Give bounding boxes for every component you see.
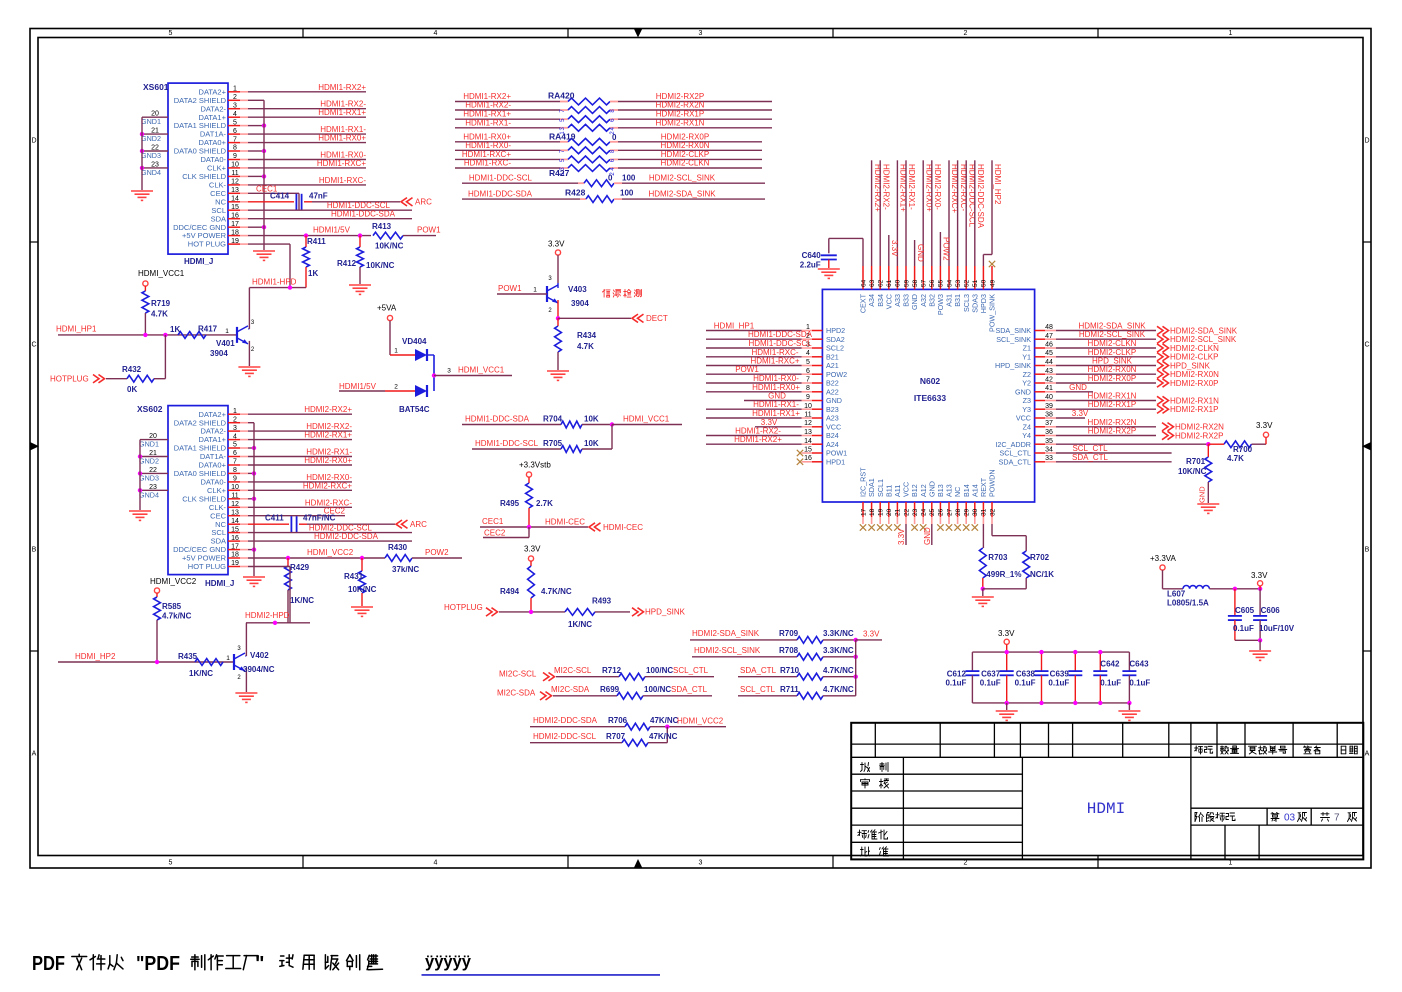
- svg-text:D: D: [1364, 138, 1369, 145]
- svg-text:54: 54: [946, 279, 953, 287]
- svg-text:POW1: POW1: [498, 284, 522, 293]
- svg-text:A22: A22: [826, 387, 839, 396]
- svg-text:VCC: VCC: [1016, 414, 1031, 423]
- svg-text:C637: C637: [981, 670, 1001, 679]
- svg-text:3.3V: 3.3V: [1256, 421, 1273, 430]
- svg-text:37k/NC: 37k/NC: [392, 565, 419, 574]
- svg-text:58: 58: [912, 279, 919, 287]
- svg-text:N602: N602: [920, 376, 941, 386]
- svg-text:MI2C-SCL: MI2C-SCL: [554, 666, 592, 675]
- svg-text:33: 33: [1045, 455, 1053, 462]
- svg-text:10: 10: [231, 484, 239, 491]
- svg-text:41: 41: [1045, 385, 1053, 392]
- svg-text:29: 29: [964, 508, 971, 516]
- svg-text:21: 21: [895, 508, 902, 516]
- svg-text:C612: C612: [947, 670, 967, 679]
- svg-text:62: 62: [878, 279, 885, 287]
- svg-text:RA419: RA419: [549, 132, 576, 142]
- svg-text:Y1: Y1: [1022, 352, 1031, 361]
- svg-text:HDMI_HP1: HDMI_HP1: [56, 325, 97, 334]
- svg-text:15: 15: [804, 447, 812, 454]
- svg-text:HDMI2-RX0-: HDMI2-RX0-: [933, 164, 942, 210]
- svg-text:POW2: POW2: [826, 370, 847, 379]
- svg-text:+3.3Vstb: +3.3Vstb: [519, 461, 551, 470]
- svg-text:22: 22: [903, 508, 910, 516]
- svg-text:63: 63: [869, 279, 876, 287]
- svg-text:HDMI2-RX1N: HDMI2-RX1N: [656, 118, 705, 127]
- svg-text:GND1: GND1: [141, 117, 161, 126]
- svg-text:HDMI1-RX1+: HDMI1-RX1+: [318, 108, 366, 117]
- svg-text:V401: V401: [216, 339, 235, 348]
- svg-text:C643: C643: [1129, 660, 1149, 669]
- svg-text:HDMI1-RXC+: HDMI1-RXC+: [317, 159, 366, 168]
- svg-text:17: 17: [860, 508, 867, 516]
- svg-text:POW_SINK: POW_SINK: [988, 294, 997, 332]
- svg-text:C605: C605: [1235, 606, 1255, 615]
- svg-text:HDMI1-RXC-: HDMI1-RXC-: [751, 348, 798, 357]
- svg-text:HDMI2-RX1N: HDMI2-RX1N: [1088, 392, 1137, 401]
- svg-text:R703: R703: [988, 553, 1008, 562]
- svg-text:47: 47: [1045, 333, 1053, 340]
- svg-text:R494: R494: [500, 587, 520, 596]
- svg-text:7: 7: [233, 459, 237, 466]
- svg-text:1: 1: [233, 408, 237, 415]
- svg-text:4: 4: [434, 30, 438, 37]
- svg-text:61: 61: [886, 279, 893, 287]
- svg-text:0.1uF: 0.1uF: [945, 679, 966, 688]
- svg-text:5: 5: [169, 30, 173, 37]
- svg-text:SDA_SINK: SDA_SINK: [995, 326, 1031, 335]
- svg-text:R709: R709: [779, 629, 799, 638]
- svg-text:45: 45: [1045, 350, 1053, 357]
- svg-text:R413: R413: [372, 222, 392, 231]
- svg-text:GND: GND: [768, 392, 786, 401]
- svg-text:0K: 0K: [127, 385, 137, 394]
- svg-text:HDMI2-SCL_SINK: HDMI2-SCL_SINK: [649, 174, 716, 183]
- svg-text:2: 2: [233, 94, 237, 101]
- svg-text:HDMI_HP2: HDMI_HP2: [993, 164, 1002, 205]
- svg-text:POW1: POW1: [735, 365, 759, 374]
- svg-text:47nF: 47nF: [309, 191, 328, 200]
- svg-text:5: 5: [806, 359, 810, 366]
- svg-text:HPD_SINK: HPD_SINK: [1170, 361, 1211, 370]
- svg-text:HPD1: HPD1: [826, 457, 845, 466]
- svg-text:4.7K: 4.7K: [1227, 454, 1244, 463]
- svg-text:POW2: POW2: [942, 237, 951, 261]
- svg-text:HDMI1-DDC-SDA: HDMI1-DDC-SDA: [748, 330, 813, 339]
- svg-text:R495: R495: [500, 499, 520, 508]
- svg-text:7: 7: [806, 377, 810, 384]
- svg-text:3.3K/NC: 3.3K/NC: [823, 629, 854, 638]
- svg-text:R707: R707: [606, 732, 626, 741]
- svg-text:HDMI_VCC1: HDMI_VCC1: [138, 269, 185, 278]
- svg-text:R434: R434: [577, 331, 597, 340]
- svg-text:HDMI2-CLKN: HDMI2-CLKN: [1088, 339, 1137, 348]
- svg-text:R417: R417: [198, 325, 218, 334]
- svg-text:39: 39: [1045, 403, 1053, 410]
- svg-text:26: 26: [938, 508, 945, 516]
- svg-text:0.1uF: 0.1uF: [980, 679, 1001, 688]
- svg-text:A21: A21: [826, 361, 839, 370]
- svg-text:HDMI2-CLKP: HDMI2-CLKP: [1170, 353, 1218, 362]
- svg-text:10uF/10V: 10uF/10V: [1259, 624, 1295, 633]
- svg-text:HDMI: HDMI: [1087, 800, 1125, 818]
- svg-text:37: 37: [1045, 420, 1053, 427]
- svg-text:R435: R435: [178, 652, 198, 661]
- svg-text:56: 56: [929, 279, 936, 287]
- svg-text:1: 1: [225, 328, 229, 335]
- svg-text:8: 8: [233, 145, 237, 152]
- svg-text:499R_1%: 499R_1%: [986, 570, 1021, 579]
- svg-text:Y3: Y3: [1022, 405, 1031, 414]
- svg-text:HDMI_HP1: HDMI_HP1: [714, 322, 755, 331]
- svg-text:10K: 10K: [584, 415, 599, 424]
- svg-text:B23: B23: [826, 405, 839, 414]
- svg-text:19: 19: [878, 508, 885, 516]
- svg-text:HPD_SINK: HPD_SINK: [645, 608, 686, 617]
- svg-text:HDMI2-RX1P: HDMI2-RX1P: [1170, 405, 1218, 414]
- svg-text:HDMI1-DDC-SCL: HDMI1-DDC-SCL: [475, 439, 539, 448]
- svg-text:7: 7: [233, 136, 237, 143]
- svg-text:C: C: [1364, 342, 1369, 349]
- svg-text:HPD2: HPD2: [826, 326, 845, 335]
- svg-text:0.1uF: 0.1uF: [1015, 679, 1036, 688]
- svg-text:15: 15: [231, 204, 239, 211]
- svg-text:2: 2: [964, 30, 968, 37]
- svg-text:4: 4: [806, 350, 810, 357]
- svg-text:0.1uF: 0.1uF: [1129, 679, 1150, 688]
- svg-text:10K: 10K: [584, 439, 599, 448]
- svg-text:GND: GND: [826, 396, 842, 405]
- svg-text:1: 1: [533, 287, 537, 294]
- svg-text:ARC: ARC: [415, 197, 432, 206]
- svg-text:SCL_CTL: SCL_CTL: [673, 666, 709, 675]
- svg-text:HDMI2-RX1P: HDMI2-RX1P: [1088, 400, 1136, 409]
- svg-text:HDMI2-SCL_SINK: HDMI2-SCL_SINK: [694, 646, 761, 655]
- svg-text:1K: 1K: [170, 325, 180, 334]
- svg-text:B: B: [32, 547, 37, 554]
- svg-text:VD404: VD404: [402, 337, 427, 346]
- svg-text:10K/NC: 10K/NC: [1178, 467, 1207, 476]
- svg-text:0: 0: [608, 174, 613, 183]
- svg-text:R428: R428: [565, 188, 586, 198]
- svg-text:0: 0: [612, 133, 617, 142]
- svg-text:HDMI2-DDC-SDA: HDMI2-DDC-SDA: [314, 532, 379, 541]
- svg-text:R719: R719: [151, 299, 171, 308]
- svg-text:49: 49: [989, 279, 996, 287]
- svg-text:4.7K/NC: 4.7K/NC: [541, 587, 572, 596]
- svg-text:R700: R700: [1233, 445, 1253, 454]
- svg-text:5: 5: [169, 860, 173, 867]
- svg-text:1K: 1K: [308, 269, 318, 278]
- svg-text:3: 3: [233, 102, 237, 109]
- svg-text:1K/NC: 1K/NC: [189, 669, 213, 678]
- svg-text:C: C: [31, 342, 36, 349]
- svg-text:HDMI2-SCL_SINK: HDMI2-SCL_SINK: [1079, 330, 1146, 339]
- svg-text:HDMI2-CLKN: HDMI2-CLKN: [1170, 344, 1219, 353]
- svg-text:3904: 3904: [571, 299, 589, 308]
- svg-text:2: 2: [394, 384, 398, 391]
- svg-text:A: A: [1365, 751, 1370, 758]
- svg-text:0.1uF: 0.1uF: [1048, 679, 1069, 688]
- svg-text:GND: GND: [916, 244, 925, 262]
- svg-text:R706: R706: [608, 716, 628, 725]
- svg-text:13: 13: [231, 509, 239, 516]
- svg-text:HDMI_VCC2: HDMI_VCC2: [307, 548, 354, 557]
- svg-text:R704: R704: [543, 415, 563, 424]
- svg-text:V402: V402: [250, 651, 269, 660]
- svg-text:HDMI1-RXC-: HDMI1-RXC-: [464, 159, 511, 168]
- svg-text:10K/NC: 10K/NC: [375, 242, 404, 251]
- svg-text:GND: GND: [1015, 387, 1031, 396]
- svg-text:HDMI1-DDC-SDA: HDMI1-DDC-SDA: [465, 415, 530, 424]
- svg-text:8: 8: [806, 385, 810, 392]
- svg-text:19: 19: [231, 238, 239, 245]
- svg-text:HDMI1-DDC-SCL: HDMI1-DDC-SCL: [469, 174, 533, 183]
- svg-text:R429: R429: [290, 563, 310, 572]
- svg-text:HDMI1-HPD: HDMI1-HPD: [252, 278, 297, 287]
- svg-text:B24: B24: [826, 431, 839, 440]
- svg-text:MI2C-SDA: MI2C-SDA: [551, 685, 590, 694]
- svg-text:15: 15: [231, 526, 239, 533]
- svg-text:POW2: POW2: [425, 548, 449, 557]
- svg-text:14: 14: [231, 196, 239, 203]
- svg-text:1K/NC: 1K/NC: [568, 620, 592, 629]
- svg-text:HDMI1-RX0+: HDMI1-RX0+: [752, 383, 800, 392]
- svg-text:B21: B21: [826, 352, 839, 361]
- svg-text:PDF: PDF: [32, 953, 65, 975]
- svg-text:SDA_CTL: SDA_CTL: [999, 457, 1031, 466]
- svg-text:R699: R699: [600, 685, 620, 694]
- svg-text:R712: R712: [602, 666, 622, 675]
- svg-text:C638: C638: [1016, 670, 1036, 679]
- svg-text:6: 6: [233, 128, 237, 135]
- svg-text:53: 53: [955, 279, 962, 287]
- svg-text:4: 4: [233, 111, 237, 118]
- svg-text:HDMI2-SDA_SINK: HDMI2-SDA_SINK: [692, 629, 760, 638]
- svg-text:3: 3: [447, 368, 451, 375]
- svg-text:13: 13: [804, 429, 812, 436]
- svg-text:14: 14: [804, 438, 812, 445]
- svg-text:I2C_ADDR: I2C_ADDR: [995, 440, 1031, 449]
- svg-text:R585: R585: [162, 602, 182, 611]
- svg-text:24: 24: [921, 508, 928, 516]
- svg-text:HDMI2-SDA_SINK: HDMI2-SDA_SINK: [1170, 326, 1238, 335]
- svg-text:HDMI1-RX0+: HDMI1-RX0+: [318, 134, 366, 143]
- svg-text:SDA_CTL: SDA_CTL: [671, 685, 708, 694]
- svg-text:GND: GND: [923, 527, 932, 545]
- svg-text:6: 6: [233, 450, 237, 457]
- svg-text:3.3V: 3.3V: [890, 240, 899, 257]
- svg-text:10K/NC: 10K/NC: [366, 261, 395, 270]
- svg-text:GND3: GND3: [139, 473, 159, 482]
- svg-text:SDA2: SDA2: [826, 335, 845, 344]
- svg-text:3.3V: 3.3V: [1251, 571, 1268, 580]
- svg-text:HDMI2-RX2N: HDMI2-RX2N: [1088, 418, 1137, 427]
- svg-text:R431: R431: [344, 572, 364, 581]
- svg-text:HDMI-CEC: HDMI-CEC: [603, 523, 643, 532]
- svg-text:B: B: [1365, 547, 1370, 554]
- svg-text:9: 9: [806, 394, 810, 401]
- svg-text:A24: A24: [826, 440, 839, 449]
- svg-text:30: 30: [972, 508, 979, 516]
- svg-text:HDMI2-RX0P: HDMI2-RX0P: [1088, 374, 1136, 383]
- svg-text:14: 14: [231, 518, 239, 525]
- svg-text:44: 44: [1045, 359, 1053, 366]
- svg-text:HDMI2-CLKP: HDMI2-CLKP: [1088, 348, 1136, 357]
- svg-text:52: 52: [964, 279, 971, 287]
- svg-text:POW1: POW1: [417, 226, 441, 235]
- svg-text:HDMI1-RX2-: HDMI1-RX2-: [735, 427, 781, 436]
- svg-text:R705: R705: [543, 439, 563, 448]
- svg-text:9: 9: [233, 153, 237, 160]
- svg-text:HDMI1-RX1-: HDMI1-RX1-: [465, 118, 511, 127]
- svg-text:60: 60: [895, 279, 902, 287]
- svg-text:12: 12: [804, 420, 812, 427]
- svg-text:25: 25: [929, 508, 936, 516]
- svg-text:HDMI_VCC1: HDMI_VCC1: [623, 415, 670, 424]
- svg-text:16: 16: [231, 212, 239, 219]
- svg-text:16: 16: [231, 535, 239, 542]
- svg-text:27: 27: [946, 508, 953, 516]
- svg-text:4.7k/NC: 4.7k/NC: [162, 612, 192, 621]
- svg-text:R708: R708: [779, 646, 799, 655]
- svg-text:C606: C606: [1261, 606, 1281, 615]
- svg-text:HOT PLUG: HOT PLUG: [188, 562, 226, 571]
- svg-text:A23: A23: [826, 414, 839, 423]
- svg-text:3: 3: [699, 860, 703, 867]
- svg-text:100: 100: [620, 189, 634, 198]
- svg-text:28: 28: [955, 508, 962, 516]
- svg-text:HDMI-CEC: HDMI-CEC: [545, 518, 585, 527]
- svg-text:34: 34: [1045, 447, 1053, 454]
- svg-text:100/NC: 100/NC: [646, 666, 673, 675]
- svg-text:HDMI1-RX0-: HDMI1-RX0-: [753, 374, 799, 383]
- svg-text:4.7K/NC: 4.7K/NC: [823, 666, 854, 675]
- svg-text:HDMI1-RX2+: HDMI1-RX2+: [734, 435, 782, 444]
- svg-text:R411: R411: [307, 237, 326, 246]
- svg-text:43: 43: [1045, 368, 1053, 375]
- svg-text:HDMI2-RX1+: HDMI2-RX1+: [304, 431, 352, 440]
- svg-text:23: 23: [912, 508, 919, 516]
- svg-text:MI2C-SCL: MI2C-SCL: [499, 670, 537, 679]
- svg-text:2: 2: [233, 416, 237, 423]
- svg-text:0.1uF: 0.1uF: [1233, 624, 1254, 633]
- svg-text:3.3V: 3.3V: [998, 629, 1015, 638]
- svg-text:ITE6633: ITE6633: [914, 393, 946, 403]
- svg-text:HDMI1-RXC+: HDMI1-RXC+: [750, 357, 799, 366]
- svg-text:5: 5: [233, 119, 237, 126]
- svg-text:57: 57: [921, 279, 928, 287]
- svg-text:R701: R701: [1186, 457, 1206, 466]
- svg-text:35: 35: [1045, 438, 1053, 445]
- svg-text:HDMI2-RX1-: HDMI2-RX1-: [907, 164, 916, 210]
- svg-text:SCL_CTL: SCL_CTL: [999, 449, 1031, 458]
- svg-text:SCL_CTL: SCL_CTL: [740, 685, 776, 694]
- svg-text:HDMI_VCC2: HDMI_VCC2: [150, 577, 197, 586]
- svg-text:03: 03: [1284, 813, 1296, 824]
- svg-text:HDMI1/5V: HDMI1/5V: [339, 382, 377, 391]
- svg-text:Z4: Z4: [1023, 422, 1031, 431]
- svg-text:4.7K: 4.7K: [577, 342, 594, 351]
- svg-text:10K/NC: 10K/NC: [348, 585, 377, 594]
- svg-text:Z1: Z1: [1023, 344, 1031, 353]
- svg-text:HDMI1-RX0-: HDMI1-RX0-: [465, 141, 511, 150]
- svg-text:8: 8: [233, 467, 237, 474]
- svg-text:SDA_CTL: SDA_CTL: [1072, 453, 1109, 462]
- svg-text:3.3V: 3.3V: [548, 240, 565, 249]
- svg-text:HDMI2-SCL_SINK: HDMI2-SCL_SINK: [1170, 335, 1237, 344]
- svg-text:47nF/NC: 47nF/NC: [303, 514, 336, 523]
- svg-text:CEC2: CEC2: [484, 529, 506, 538]
- svg-text:1: 1: [233, 86, 237, 93]
- svg-text:HDMI1-DDC-SCL: HDMI1-DDC-SCL: [748, 339, 812, 348]
- svg-text:GND: GND: [1069, 383, 1087, 392]
- svg-text:50: 50: [981, 279, 988, 287]
- svg-text:R430: R430: [388, 543, 408, 552]
- svg-text:SDA_CTL: SDA_CTL: [740, 666, 777, 675]
- svg-text:HDMI_VCC2: HDMI_VCC2: [677, 717, 724, 726]
- svg-text:HDMI1/5V: HDMI1/5V: [313, 226, 351, 235]
- svg-text:47K/NC: 47K/NC: [650, 716, 679, 725]
- svg-text:HDMI2-RX0N: HDMI2-RX0N: [1170, 370, 1219, 379]
- svg-text:47K/NC: 47K/NC: [649, 732, 678, 741]
- svg-text:10: 10: [231, 162, 239, 169]
- svg-text:10: 10: [804, 403, 812, 410]
- svg-text:R710: R710: [780, 666, 800, 675]
- svg-text:L607: L607: [1167, 590, 1186, 599]
- svg-text:Y2: Y2: [1022, 379, 1031, 388]
- svg-text:3.3V: 3.3V: [897, 528, 906, 545]
- svg-text:1: 1: [1229, 860, 1233, 867]
- svg-text:HDMI2-SDA_SINK: HDMI2-SDA_SINK: [648, 190, 716, 199]
- svg-text:1K/NC: 1K/NC: [290, 596, 314, 605]
- svg-text:GND4: GND4: [141, 168, 161, 177]
- svg-text:3.3V: 3.3V: [761, 418, 778, 427]
- svg-text:POWDN: POWDN: [988, 469, 997, 497]
- svg-text:HDMI2-RX0P: HDMI2-RX0P: [1170, 379, 1218, 388]
- svg-text:20: 20: [886, 508, 893, 516]
- svg-text:NC/1K: NC/1K: [1030, 570, 1054, 579]
- svg-text:CEC1: CEC1: [482, 517, 504, 526]
- svg-text:4: 4: [233, 433, 237, 440]
- svg-text:6: 6: [806, 368, 810, 375]
- svg-text:HDMI2-RX2+: HDMI2-RX2+: [304, 405, 352, 414]
- svg-text:DECT: DECT: [646, 314, 668, 323]
- svg-text:59: 59: [903, 279, 910, 287]
- svg-text:HDMI2-RX2P: HDMI2-RX2P: [1088, 427, 1136, 436]
- svg-text:HDMI1-DDC-SDA: HDMI1-DDC-SDA: [468, 190, 533, 199]
- svg-text:17: 17: [231, 543, 239, 550]
- svg-text:HDMI_HP2: HDMI_HP2: [75, 652, 116, 661]
- svg-text:3.3V: 3.3V: [524, 545, 541, 554]
- svg-text:Z2: Z2: [1023, 370, 1031, 379]
- svg-text:1: 1: [226, 655, 230, 662]
- svg-text:R427: R427: [549, 168, 570, 178]
- svg-text:R432: R432: [122, 365, 142, 374]
- svg-text:11: 11: [231, 170, 238, 177]
- svg-text:"PDF: "PDF: [136, 953, 180, 975]
- svg-text:3.3K/NC: 3.3K/NC: [823, 646, 854, 655]
- svg-text:11: 11: [231, 493, 238, 500]
- svg-text:XS601: XS601: [143, 82, 169, 92]
- svg-text:4: 4: [434, 860, 438, 867]
- svg-text:B22: B22: [826, 379, 839, 388]
- svg-text:R493: R493: [592, 597, 612, 606]
- svg-text:HPD_SINK: HPD_SINK: [995, 361, 1031, 370]
- svg-text:3904/NC: 3904/NC: [243, 665, 275, 674]
- svg-text:+5VA: +5VA: [377, 304, 397, 313]
